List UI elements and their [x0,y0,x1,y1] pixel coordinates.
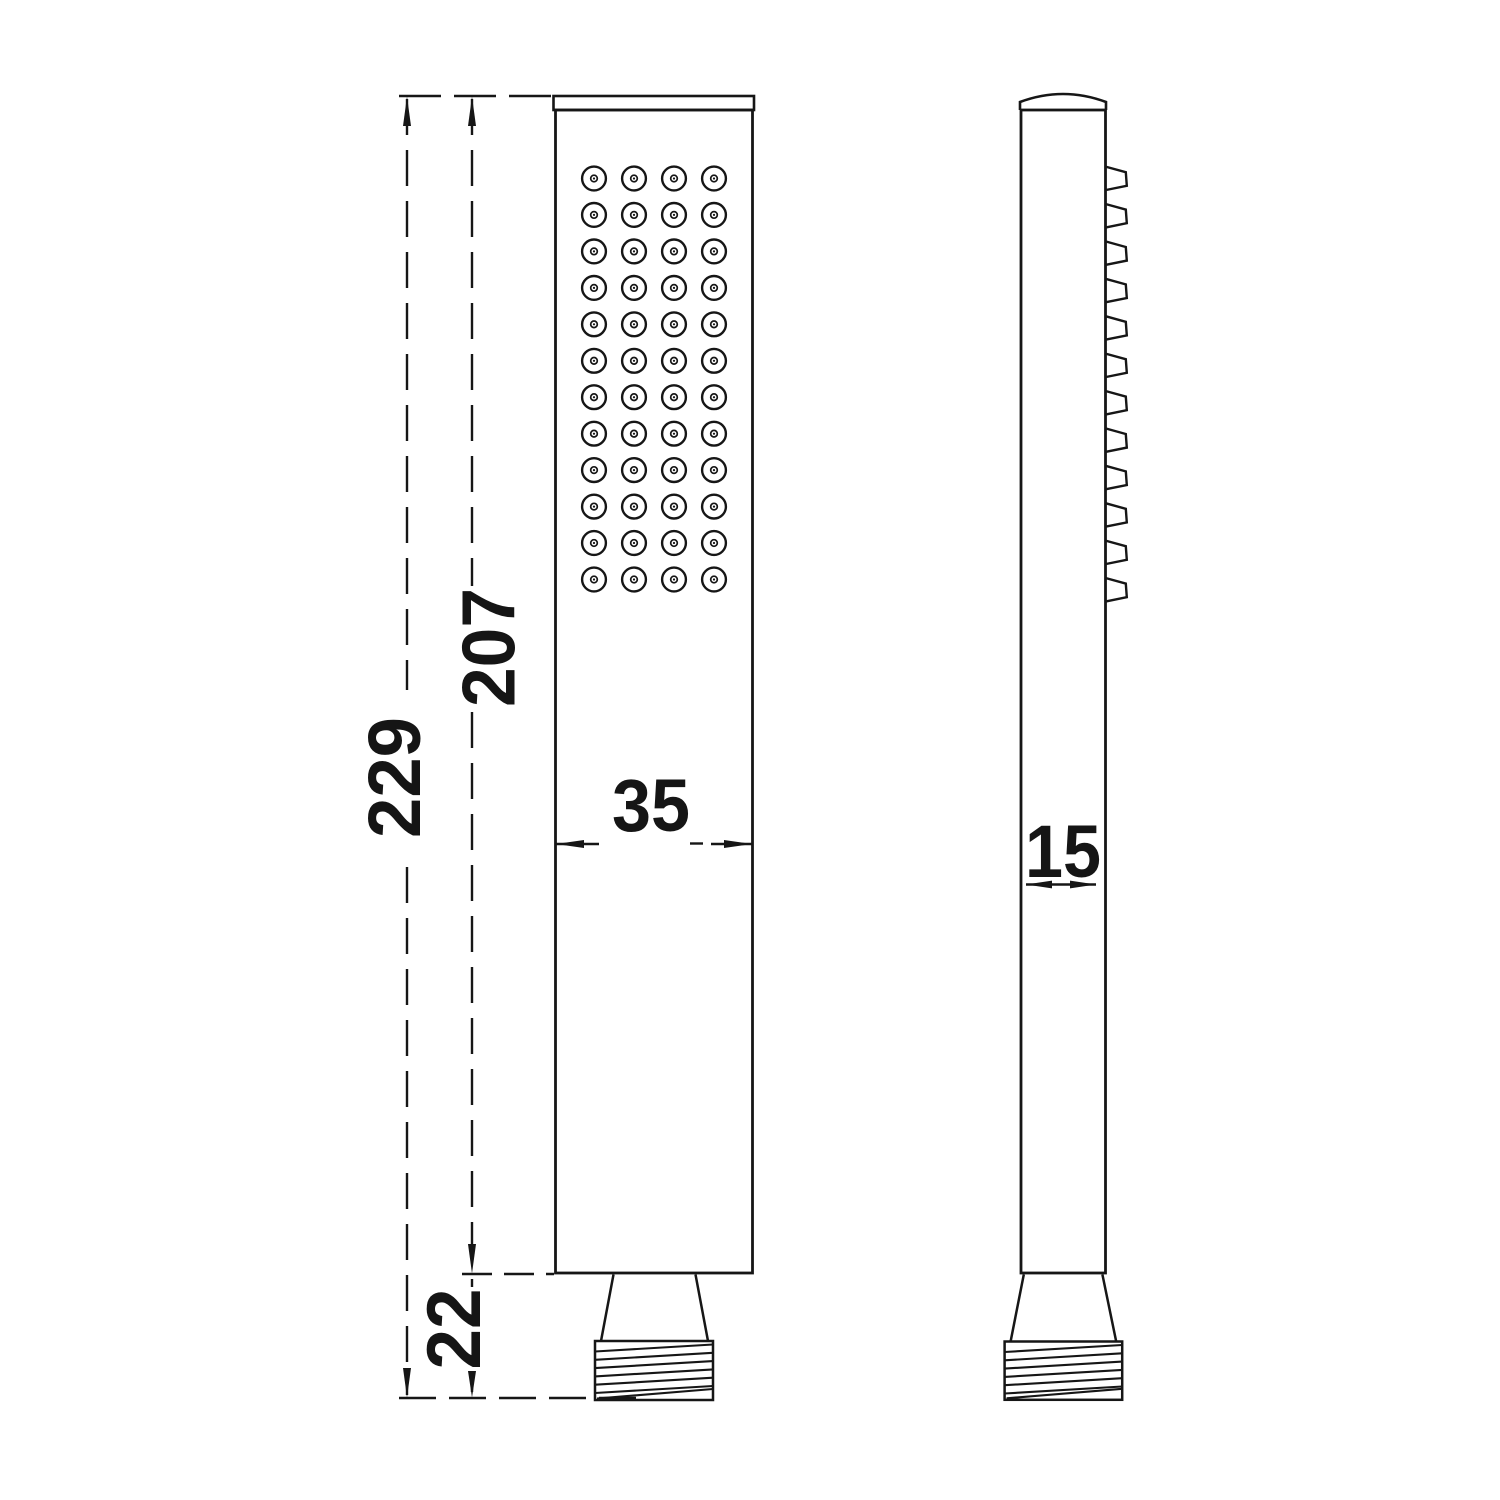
svg-text:22: 22 [412,1289,497,1370]
svg-text:35: 35 [612,764,690,847]
svg-text:229: 229 [353,717,436,838]
svg-text:15: 15 [1025,810,1101,893]
svg-text:207: 207 [447,588,531,707]
